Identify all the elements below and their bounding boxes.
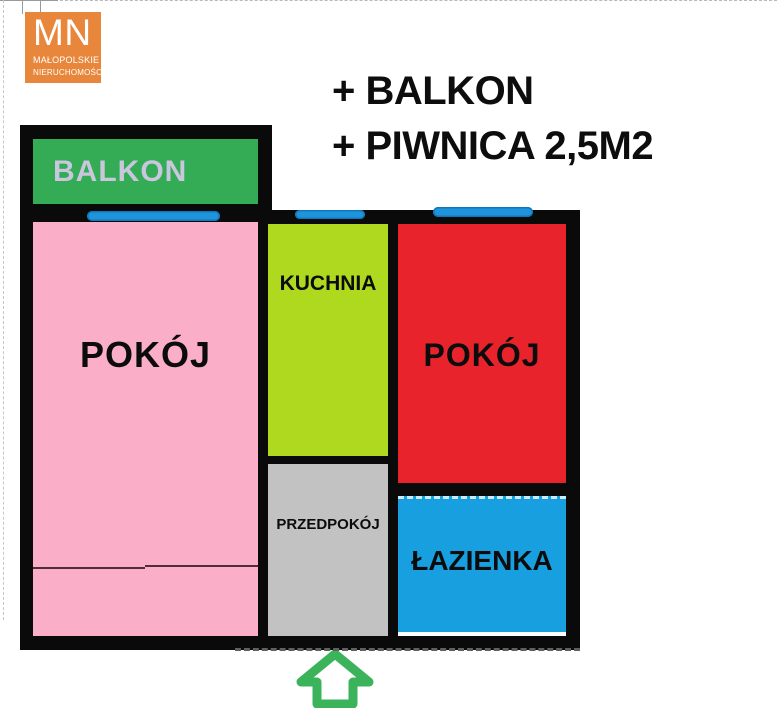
room-pokoj-right: POKÓJ: [398, 224, 566, 483]
window-marker: [295, 210, 365, 219]
room-przedpokoj: PRZEDPOKÓJ: [268, 464, 388, 636]
logo-line1: MAŁOPOLSKIE: [33, 55, 101, 65]
logo-line2: NIERUCHOMOŚCI: [33, 68, 101, 77]
room-lazienka: ŁAZIENKA: [398, 496, 566, 632]
room-kuchnia: KUCHNIA: [268, 224, 388, 456]
grid-tick: [22, 0, 23, 14]
wall-inner-vertical-1: [258, 210, 268, 650]
extra-piwnica: + PIWNICA 2,5M2: [332, 119, 653, 174]
room-pokoj-left: POKÓJ: [33, 222, 258, 636]
grid-ruler-top-left: [0, 0, 58, 1]
grid-ruler-top: [0, 0, 777, 1]
room-label-pokoj-left: POKÓJ: [33, 334, 258, 376]
room-balkon: BALKON: [33, 139, 258, 204]
grid-ruler-left: [3, 0, 4, 620]
extra-balkon: + BALKON: [332, 64, 653, 119]
room-label-lazienka: ŁAZIENKA: [398, 545, 566, 577]
window-marker: [433, 207, 533, 217]
entrance-arrow-icon: [294, 650, 376, 708]
window-marker: [87, 211, 220, 221]
wall-hatch-marks: [235, 648, 580, 651]
agency-logo: MN MAŁOPOLSKIE NIERUCHOMOŚCI: [25, 12, 101, 83]
floor-divider-line: [145, 565, 258, 567]
room-label-pokoj-right: POKÓJ: [398, 337, 566, 374]
wall-left: [20, 210, 33, 650]
logo-initials: MN: [33, 13, 101, 53]
listing-extras: + BALKON + PIWNICA 2,5M2: [332, 64, 653, 174]
floor-divider-line: [33, 567, 145, 569]
wall-inner-vertical-2: [388, 222, 398, 650]
room-label-kuchnia: KUCHNIA: [268, 272, 388, 296]
wall-right: [566, 210, 580, 650]
room-label-przedpokoj: PRZEDPOKÓJ: [268, 516, 388, 533]
room-label-balkon: BALKON: [53, 155, 187, 188]
floorplan-page: MN MAŁOPOLSKIE NIERUCHOMOŚCI + BALKON + …: [0, 0, 777, 708]
